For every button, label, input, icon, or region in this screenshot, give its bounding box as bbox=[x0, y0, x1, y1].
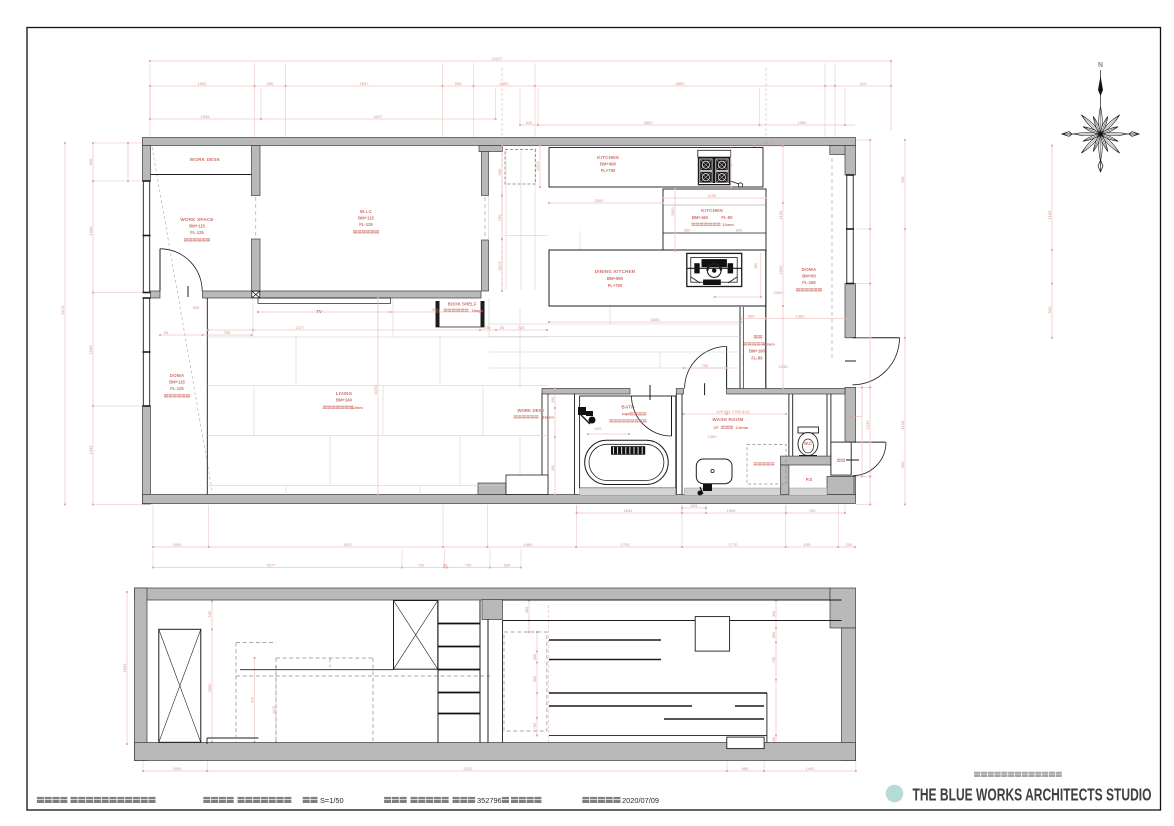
svg-text:685: 685 bbox=[742, 766, 749, 771]
svg-text:520: 520 bbox=[595, 426, 602, 431]
svg-text:470: 470 bbox=[250, 697, 254, 703]
svg-text:BM+115: BM+115 bbox=[169, 380, 185, 385]
svg-text:625: 625 bbox=[691, 503, 698, 508]
svg-text:DOMA: DOMA bbox=[170, 373, 185, 378]
svg-text:BATH: BATH bbox=[621, 405, 635, 410]
svg-text:229.5: 229.5 bbox=[536, 162, 540, 171]
svg-text:BM+990: BM+990 bbox=[600, 162, 617, 167]
svg-text:50: 50 bbox=[443, 562, 448, 567]
svg-text:360: 360 bbox=[684, 228, 691, 233]
svg-text:2430: 2430 bbox=[670, 207, 675, 217]
svg-text:CF: CF bbox=[713, 425, 719, 430]
svg-text:1050: 1050 bbox=[708, 434, 718, 439]
svg-text:FRP: FRP bbox=[622, 412, 630, 417]
svg-text:16mm: 16mm bbox=[542, 415, 554, 420]
svg-text:700: 700 bbox=[809, 508, 816, 513]
svg-text:FL-125: FL-125 bbox=[190, 230, 204, 235]
svg-text:50: 50 bbox=[500, 325, 505, 330]
svg-text:2045: 2045 bbox=[779, 364, 789, 369]
svg-text:2377: 2377 bbox=[296, 325, 306, 330]
svg-text:1400: 1400 bbox=[806, 766, 816, 771]
svg-text:1000: 1000 bbox=[173, 542, 183, 547]
svg-text:1050: 1050 bbox=[500, 81, 510, 86]
svg-text:2000: 2000 bbox=[595, 198, 605, 203]
svg-text:BM+160: BM+160 bbox=[749, 349, 766, 354]
svg-text:650: 650 bbox=[88, 158, 93, 165]
svg-text:1233: 1233 bbox=[865, 420, 870, 430]
svg-text:535: 535 bbox=[193, 305, 200, 310]
svg-text:310: 310 bbox=[526, 120, 533, 125]
svg-text:1905: 1905 bbox=[201, 114, 211, 119]
svg-text:DINING KITCHEN: DINING KITCHEN bbox=[595, 269, 636, 274]
svg-text:1900: 1900 bbox=[727, 508, 737, 513]
svg-text:THE BLUE WORKS ARCHITECTS STUD: THE BLUE WORKS ARCHITECTS STUDIO bbox=[913, 785, 1152, 805]
svg-text:300: 300 bbox=[772, 611, 776, 617]
svg-text:184: 184 bbox=[551, 465, 555, 471]
svg-text:1480: 1480 bbox=[524, 542, 534, 547]
svg-text:750: 750 bbox=[702, 363, 709, 368]
svg-text:W.I.C: W.I.C bbox=[360, 209, 373, 214]
svg-text:720: 720 bbox=[518, 325, 525, 330]
svg-text:LIVING: LIVING bbox=[336, 391, 353, 396]
svg-text:1100: 1100 bbox=[708, 193, 717, 198]
svg-text:635: 635 bbox=[804, 542, 811, 547]
svg-text:4027: 4027 bbox=[374, 114, 384, 119]
svg-text:BOOK SHELF: BOOK SHELF bbox=[448, 302, 477, 307]
svg-text:KITCHEN: KITCHEN bbox=[597, 155, 619, 160]
svg-text:530: 530 bbox=[504, 562, 511, 567]
svg-text:BM+80: BM+80 bbox=[802, 274, 816, 279]
svg-text:1900: 1900 bbox=[198, 81, 208, 86]
svg-text:BM+240: BM+240 bbox=[336, 398, 353, 403]
svg-text:300: 300 bbox=[524, 606, 529, 613]
svg-text:1705: 1705 bbox=[621, 542, 631, 547]
svg-text:KITCHEN: KITCHEN bbox=[701, 208, 723, 213]
svg-text:1770: 1770 bbox=[729, 542, 739, 547]
svg-text:380: 380 bbox=[754, 263, 758, 269]
svg-text:1540: 1540 bbox=[88, 345, 93, 355]
svg-text:3400: 3400 bbox=[651, 317, 661, 322]
svg-text:12mm: 12mm bbox=[722, 222, 734, 227]
svg-text:12mm: 12mm bbox=[351, 405, 363, 410]
svg-text:N: N bbox=[1098, 62, 1103, 69]
svg-text:BM+115: BM+115 bbox=[189, 224, 205, 229]
svg-text:2020/07/09: 2020/07/09 bbox=[622, 796, 659, 805]
svg-text:750: 750 bbox=[497, 214, 502, 221]
svg-text:3800: 3800 bbox=[644, 120, 654, 125]
svg-text:1040: 1040 bbox=[88, 226, 93, 236]
svg-text:1160: 1160 bbox=[1047, 210, 1052, 219]
svg-text:BM+990: BM+990 bbox=[607, 276, 624, 281]
svg-text:535: 535 bbox=[207, 610, 212, 617]
svg-text:550: 550 bbox=[772, 632, 776, 638]
svg-text:900: 900 bbox=[736, 228, 743, 233]
svg-text:2000: 2000 bbox=[207, 683, 212, 693]
svg-text:WORK DESK: WORK DESK bbox=[190, 157, 221, 162]
svg-text:1000: 1000 bbox=[173, 766, 183, 771]
svg-text:WASH ROOM: WASH ROOM bbox=[712, 417, 743, 422]
svg-text:400: 400 bbox=[748, 313, 755, 318]
svg-text:1000: 1000 bbox=[778, 265, 783, 275]
svg-text:120 641 1759 4.62: 120 641 1759 4.62 bbox=[716, 409, 750, 414]
svg-text:750: 750 bbox=[224, 330, 231, 335]
svg-text:18mm: 18mm bbox=[471, 308, 483, 313]
svg-text:FL-80: FL-80 bbox=[751, 356, 763, 361]
svg-text:750: 750 bbox=[900, 176, 905, 183]
svg-text:750: 750 bbox=[772, 657, 776, 663]
svg-text:FL+750: FL+750 bbox=[601, 168, 616, 173]
svg-text:730: 730 bbox=[465, 562, 472, 567]
svg-text:350: 350 bbox=[533, 654, 537, 660]
svg-text:1555: 1555 bbox=[122, 663, 127, 673]
svg-text:FL+750: FL+750 bbox=[608, 283, 623, 288]
svg-text:720: 720 bbox=[484, 325, 491, 330]
svg-text:TV: TV bbox=[316, 309, 323, 314]
svg-text:352796: 352796 bbox=[477, 796, 502, 805]
svg-text:400: 400 bbox=[551, 397, 555, 403]
svg-text:2300: 2300 bbox=[774, 290, 784, 295]
svg-text:1832: 1832 bbox=[624, 508, 634, 513]
svg-text:730: 730 bbox=[418, 562, 425, 567]
svg-text:1100: 1100 bbox=[778, 210, 783, 219]
svg-text:FL-160: FL-160 bbox=[802, 280, 816, 285]
svg-text:530: 530 bbox=[267, 81, 274, 86]
svg-text:1400: 1400 bbox=[796, 313, 806, 318]
svg-text:4027: 4027 bbox=[344, 542, 354, 547]
svg-text:1115: 1115 bbox=[272, 706, 276, 714]
svg-text:550: 550 bbox=[900, 461, 905, 468]
svg-text:1343: 1343 bbox=[88, 445, 93, 455]
svg-text:550: 550 bbox=[1047, 306, 1052, 313]
svg-text:FL-80: FL-80 bbox=[721, 215, 733, 220]
svg-text:BM+160: BM+160 bbox=[692, 215, 709, 220]
svg-text:WORK SPACE: WORK SPACE bbox=[180, 217, 213, 222]
svg-text:922.5: 922.5 bbox=[498, 262, 502, 271]
svg-text:BM+115: BM+115 bbox=[358, 216, 374, 221]
svg-text:12227: 12227 bbox=[491, 56, 503, 61]
svg-text:40mm: 40mm bbox=[763, 342, 775, 347]
svg-text:900: 900 bbox=[533, 676, 537, 682]
svg-text:900: 900 bbox=[497, 168, 502, 175]
svg-text:6172: 6172 bbox=[60, 305, 65, 315]
svg-text:S=1/50: S=1/50 bbox=[320, 796, 344, 805]
svg-text:310: 310 bbox=[860, 81, 867, 86]
svg-text:3470: 3470 bbox=[373, 385, 378, 395]
svg-text:FL-125: FL-125 bbox=[359, 222, 373, 227]
svg-text:WORK DESK: WORK DESK bbox=[517, 408, 545, 413]
svg-text:1050: 1050 bbox=[798, 120, 808, 125]
svg-text:530: 530 bbox=[455, 81, 462, 86]
svg-text:P.S: P.S bbox=[806, 477, 813, 482]
svg-text:50: 50 bbox=[164, 330, 169, 335]
svg-text:4027: 4027 bbox=[432, 307, 442, 312]
svg-text:FL-125: FL-125 bbox=[170, 386, 184, 391]
svg-text:1150: 1150 bbox=[900, 420, 905, 429]
svg-text:2417.5: 2417.5 bbox=[763, 141, 774, 145]
svg-text:W.C: W.C bbox=[804, 441, 812, 446]
svg-text:750: 750 bbox=[533, 723, 537, 729]
svg-text:2697: 2697 bbox=[360, 81, 370, 86]
svg-text:DOMA: DOMA bbox=[802, 267, 817, 272]
svg-text:4800: 4800 bbox=[676, 81, 686, 86]
svg-text:9132: 9132 bbox=[464, 766, 474, 771]
svg-text:4277: 4277 bbox=[267, 562, 277, 567]
svg-text:3.5mm: 3.5mm bbox=[736, 425, 749, 430]
svg-text:200: 200 bbox=[846, 542, 853, 547]
